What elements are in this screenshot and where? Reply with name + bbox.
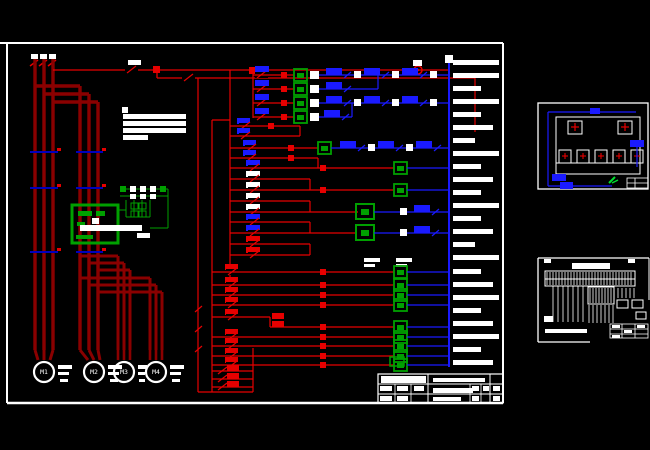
current-transformer-marks xyxy=(30,148,106,252)
ct-secondary-circuit xyxy=(118,186,168,228)
motor-symbols xyxy=(34,362,184,382)
terminal-strip-view xyxy=(538,258,649,342)
cad-drawing-screenshot: M1 M2 M3 M4 xyxy=(0,0,650,450)
control-rows-lower-mid xyxy=(212,160,449,278)
aux-mini-ladder xyxy=(195,306,253,390)
motor-label-m4: M4 xyxy=(152,369,160,376)
feeder-rungs-bottom xyxy=(212,277,449,371)
notes-text-block xyxy=(122,107,186,140)
motor-label-m1: M1 xyxy=(40,369,48,376)
motor-label-m2: M2 xyxy=(90,369,98,376)
feeder-rows-top xyxy=(253,66,449,123)
terminal-bus-and-labels xyxy=(445,55,499,367)
schematic-canvas xyxy=(0,0,650,450)
motor-label-m3: M3 xyxy=(120,369,128,376)
control-rows-mid xyxy=(230,118,449,168)
panel-layout-view xyxy=(538,103,648,189)
